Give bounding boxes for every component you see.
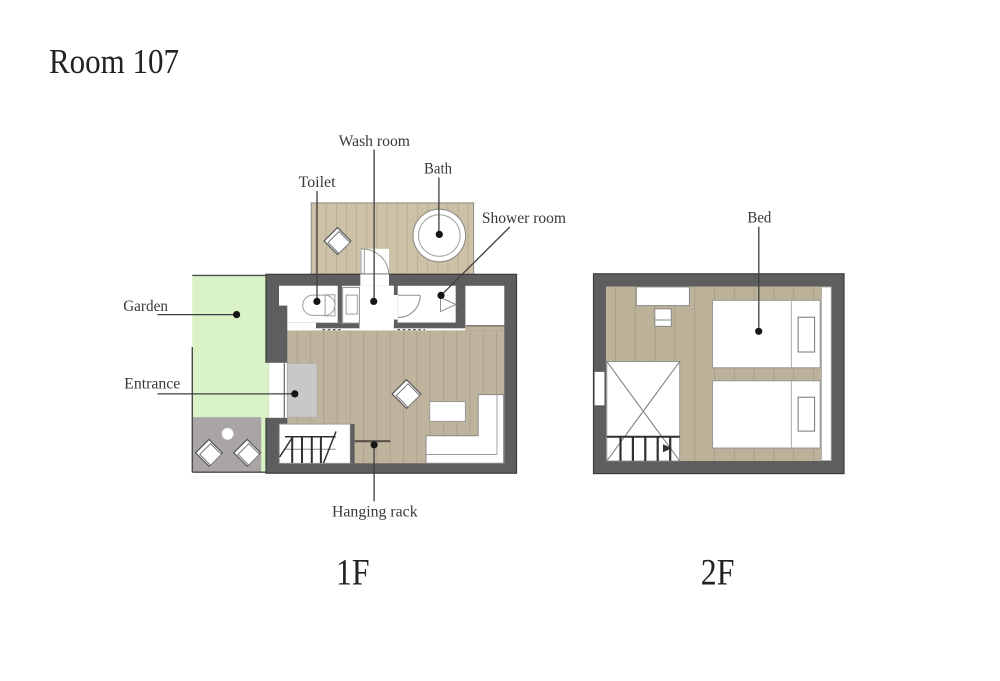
svg-text:Entrance: Entrance xyxy=(124,376,180,393)
svg-text:Toilet: Toilet xyxy=(299,174,337,191)
svg-text:1F: 1F xyxy=(336,553,370,594)
svg-text:Garden: Garden xyxy=(123,298,168,315)
svg-text:Bath: Bath xyxy=(424,161,452,178)
svg-text:Bed: Bed xyxy=(747,210,771,227)
svg-text:2F: 2F xyxy=(701,553,735,594)
svg-text:Hanging rack: Hanging rack xyxy=(332,503,418,520)
svg-text:Wash room: Wash room xyxy=(339,133,411,150)
svg-text:Shower room: Shower room xyxy=(482,210,566,227)
svg-text:Room 107: Room 107 xyxy=(49,42,179,81)
